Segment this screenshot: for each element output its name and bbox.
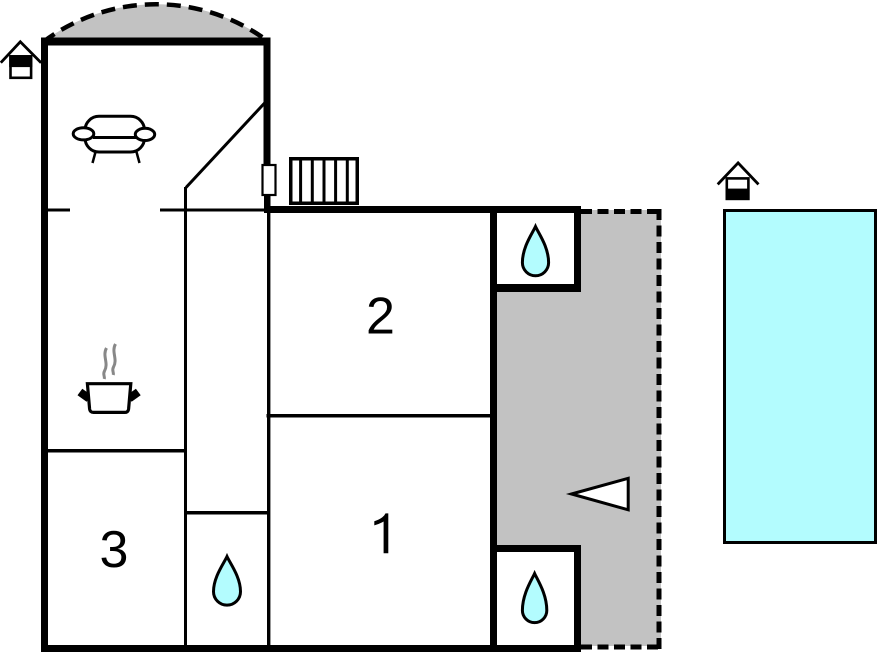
svg-text:2: 2 — [366, 288, 395, 346]
svg-text:3: 3 — [100, 521, 129, 579]
